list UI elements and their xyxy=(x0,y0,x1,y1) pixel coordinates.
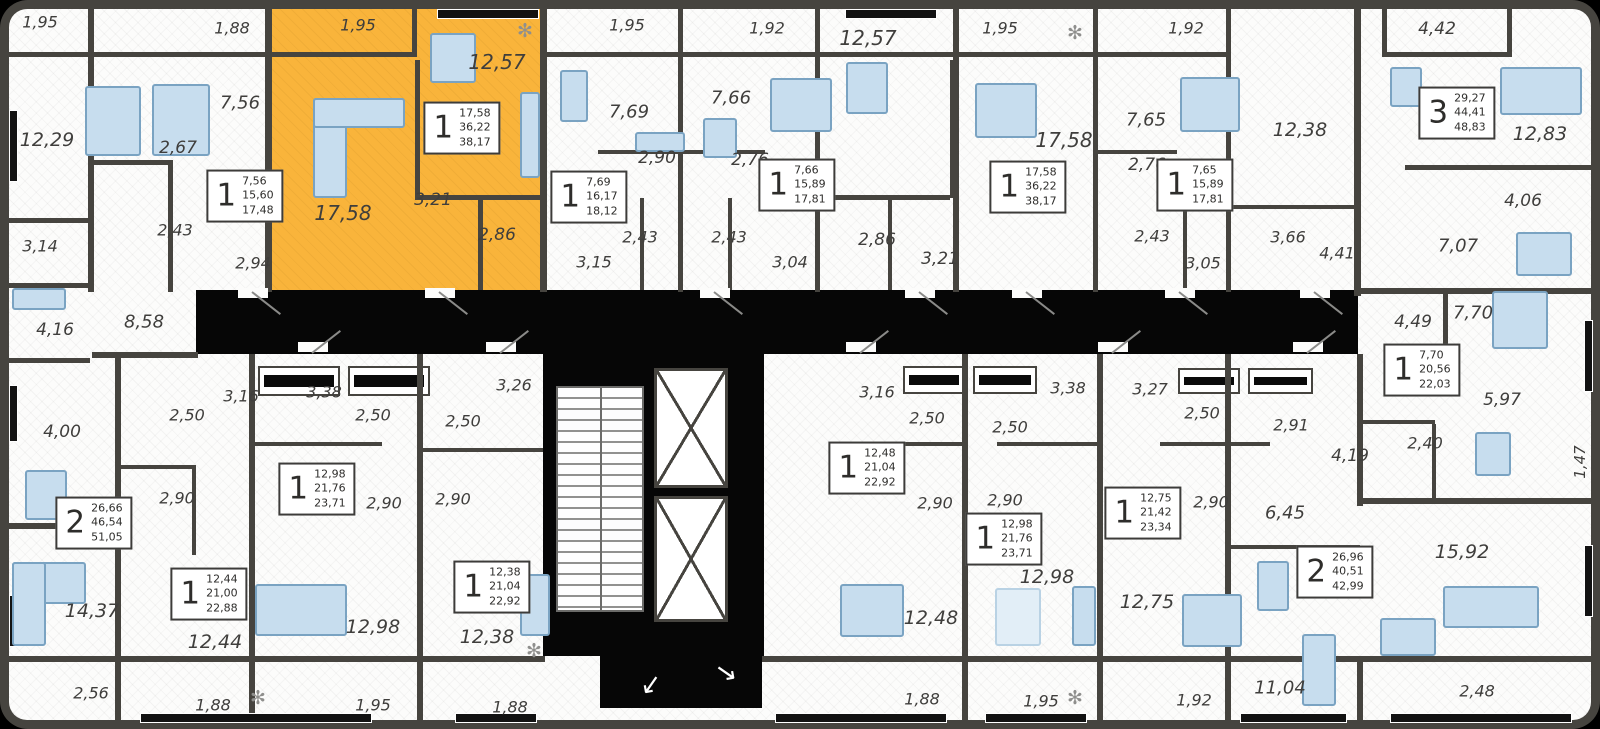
wall-segment xyxy=(1382,9,1387,57)
room-area-label: 2,90 xyxy=(366,494,402,513)
room-area-label: 2,90 xyxy=(159,489,195,508)
apartment-rooms-count: 1 xyxy=(463,571,483,602)
wall-segment xyxy=(1228,205,1356,209)
dining-table-icon xyxy=(1516,232,1572,276)
apartment-rooms-count: 1 xyxy=(288,473,308,504)
room-area-label: 12,38 xyxy=(1273,119,1327,141)
bed-icon xyxy=(1180,77,1240,132)
room-area-label: 3,38 xyxy=(1050,379,1086,398)
apartment-areas: 26,6646,5451,05 xyxy=(91,502,123,545)
room-area-label: 12,98 xyxy=(346,616,400,638)
wall-segment xyxy=(1183,198,1187,290)
apartment-areas: 7,6916,1718,12 xyxy=(586,176,618,219)
room-area-label: 3,21 xyxy=(921,249,959,269)
plant-icon: ✻ xyxy=(526,640,546,660)
window xyxy=(1390,713,1572,723)
kitchen-counter-icon xyxy=(520,92,540,178)
room-area-label: 14,37 xyxy=(65,600,119,622)
room-area-label: 12,57 xyxy=(839,26,896,50)
wall-segment xyxy=(1405,165,1592,170)
apartment-rooms-count: 1 xyxy=(768,169,788,200)
apartment-rooms-count: 1 xyxy=(1114,497,1134,528)
room-area-label: 11,04 xyxy=(1254,678,1306,699)
rug-icon xyxy=(995,588,1041,646)
wall-segment xyxy=(1354,9,1361,296)
room-area-label: 2,43 xyxy=(711,228,747,247)
room-area-label: 1,92 xyxy=(749,19,785,38)
exit-arrow-icon: ↙ xyxy=(638,667,673,702)
apartment-stat-card: 112,4821,0422,92 xyxy=(828,442,905,495)
room-area-label: 4,19 xyxy=(1331,446,1369,466)
bed-icon xyxy=(85,86,141,156)
wall-segment xyxy=(1225,354,1231,721)
dining-table-icon xyxy=(1475,432,1511,476)
room-area-label: 2,94 xyxy=(235,254,271,273)
apartment-areas: 7,6515,8917,81 xyxy=(1192,164,1224,207)
dining-table-icon xyxy=(1257,561,1289,611)
bed-icon xyxy=(1492,291,1548,349)
room-area-label: 3,05 xyxy=(1185,254,1221,273)
wall-segment xyxy=(1507,9,1512,57)
wall-segment xyxy=(412,9,417,57)
room-area-label: 3,04 xyxy=(772,253,808,272)
bed-icon xyxy=(975,83,1037,138)
room-area-label: 6,45 xyxy=(1265,503,1305,524)
apartment-stat-card: 112,7521,4223,34 xyxy=(1104,487,1181,540)
wall-segment xyxy=(92,160,172,165)
wall-segment xyxy=(997,442,1097,446)
desk-icon xyxy=(1390,67,1422,107)
kitchen-counter-icon xyxy=(1380,618,1436,656)
wall-segment xyxy=(8,218,90,223)
room-area-label: 3,21 xyxy=(414,190,452,210)
wall-segment xyxy=(1357,656,1363,721)
room-area-label: 12,83 xyxy=(1513,123,1567,145)
room-area-label: 7,66 xyxy=(711,88,751,109)
wall-segment xyxy=(1097,354,1103,721)
apartment-rooms-count: 2 xyxy=(65,507,85,538)
apartment-stat-card: 329,2744,4148,83 xyxy=(1418,87,1495,140)
apartment-areas: 12,9821,7623,71 xyxy=(1001,518,1033,561)
window xyxy=(1584,545,1593,617)
bed-icon xyxy=(255,584,347,636)
wall-segment xyxy=(252,442,382,446)
room-area-label: 1,95 xyxy=(355,696,391,715)
sofa-icon xyxy=(1072,586,1096,646)
apartment-areas: 12,4421,0022,88 xyxy=(206,573,238,616)
exit-arrow-icon: ↘ xyxy=(713,655,748,690)
sofa-icon xyxy=(12,562,46,646)
room-area-label: 3,16 xyxy=(859,383,895,402)
wardrobe xyxy=(903,366,965,394)
room-area-label: 2,56 xyxy=(73,684,109,703)
sofa-icon xyxy=(1500,67,1582,115)
apartment-stat-card: 226,9640,5142,99 xyxy=(1296,546,1373,599)
room-area-label: 3,26 xyxy=(496,376,532,395)
wall-segment xyxy=(92,352,198,358)
plant-icon: ✻ xyxy=(250,687,270,707)
window xyxy=(985,713,1087,723)
room-area-label: 2,50 xyxy=(355,406,391,425)
room-area-label: 2,86 xyxy=(858,230,896,250)
elevator-shaft-icon xyxy=(654,496,728,622)
room-area-label: 1,95 xyxy=(982,19,1018,38)
wall-segment xyxy=(192,465,196,555)
room-area-label: 1,95 xyxy=(22,13,58,32)
apartment-stat-card: 117,5836,2238,17 xyxy=(989,161,1066,214)
room-area-label: 1,88 xyxy=(195,696,231,715)
building-floor-plan: ↙↘✻✻✻✻✻1,951,881,9512,571,951,9212,571,9… xyxy=(0,0,1600,729)
plant-icon: ✻ xyxy=(517,20,537,40)
room-area-label: 2,40 xyxy=(1407,434,1443,453)
window xyxy=(9,110,18,182)
room-area-label: 1,92 xyxy=(1168,19,1204,38)
room-area-label: 2,50 xyxy=(169,406,205,425)
wall-segment xyxy=(478,200,483,290)
room-area-label: 2,50 xyxy=(445,412,481,431)
apartment-areas: 12,4821,0422,92 xyxy=(864,447,896,490)
apartment-areas: 12,7521,4223,34 xyxy=(1140,492,1172,535)
wall-segment xyxy=(762,656,1592,662)
apartment-rooms-count: 1 xyxy=(1393,354,1413,385)
apartment-rooms-count: 1 xyxy=(433,112,453,143)
room-area-label: 2,90 xyxy=(917,494,953,513)
apartment-areas: 7,5615,6017,48 xyxy=(242,175,274,218)
wall-segment xyxy=(1160,442,1270,446)
floor-plan-stage: Residential floor plan with highlighted … xyxy=(0,0,1600,729)
window xyxy=(140,713,372,723)
plant-icon: ✻ xyxy=(1067,22,1087,42)
wall-segment xyxy=(1357,498,1592,504)
apartment-areas: 7,6615,8917,81 xyxy=(794,164,826,207)
sofa-icon xyxy=(560,70,588,122)
room-area-label: 4,00 xyxy=(43,422,81,442)
apartment-stat-card: 17,6916,1718,12 xyxy=(550,171,627,224)
apartment-stat-card: 112,3821,0422,92 xyxy=(453,561,530,614)
apartment-rooms-count: 1 xyxy=(180,578,200,609)
room-area-label: 1,47 xyxy=(1571,445,1589,478)
wall-segment xyxy=(1357,354,1363,506)
apartment-rooms-count: 3 xyxy=(1428,97,1448,128)
dining-table-icon xyxy=(846,62,888,114)
apartment-areas: 17,5836,2238,17 xyxy=(1025,166,1057,209)
room-area-label: 2,48 xyxy=(1459,682,1495,701)
apartment-stat-card: 112,9821,7623,71 xyxy=(278,463,355,516)
room-area-label: 1,95 xyxy=(609,16,645,35)
room-area-label: 3,66 xyxy=(1270,228,1306,247)
staircase xyxy=(556,386,644,612)
apartment-areas: 29,2744,4148,83 xyxy=(1454,92,1486,135)
apartment-areas: 12,9821,7623,71 xyxy=(314,468,346,511)
window xyxy=(1240,713,1347,723)
bathtub-icon xyxy=(12,288,66,310)
room-area-label: 8,58 xyxy=(124,312,164,333)
room-area-label: 12,98 xyxy=(1020,566,1074,588)
wall-segment xyxy=(8,358,90,363)
wall-segment xyxy=(249,354,255,721)
apartment-stat-card: 112,4421,0022,88 xyxy=(170,568,247,621)
room-area-label: 2,43 xyxy=(157,221,193,240)
room-area-label: 12,29 xyxy=(20,129,74,151)
wall-segment xyxy=(9,52,415,57)
wall-segment xyxy=(1382,52,1510,57)
room-area-label: 12,48 xyxy=(904,607,958,629)
room-area-label: 2,43 xyxy=(1134,227,1170,246)
room-area-label: 2,50 xyxy=(992,418,1028,437)
corridor-core-area xyxy=(196,290,1358,354)
apartment-areas: 7,7020,5622,03 xyxy=(1419,349,1451,392)
apartment-rooms-count: 2 xyxy=(1306,556,1326,587)
apartment-areas: 12,3821,0422,92 xyxy=(489,566,521,609)
wall-segment xyxy=(9,656,545,662)
apartment-stat-card: 17,6515,8917,81 xyxy=(1156,159,1233,212)
room-area-label: 12,75 xyxy=(1120,591,1174,613)
room-area-label: 12,38 xyxy=(460,626,514,648)
room-area-label: 2,90 xyxy=(638,148,676,168)
wardrobe xyxy=(1248,368,1313,394)
room-area-label: 1,88 xyxy=(492,698,528,717)
room-area-label: 1,92 xyxy=(1176,691,1212,710)
plant-icon: ✻ xyxy=(1067,687,1087,707)
sofa-icon xyxy=(1302,634,1336,706)
apartment-areas: 17,5836,2238,17 xyxy=(459,107,491,150)
window xyxy=(845,9,937,19)
sofa-icon xyxy=(1443,586,1539,628)
apartment-rooms-count: 1 xyxy=(999,171,1019,202)
room-area-label: 2,67 xyxy=(159,138,197,158)
wall-segment xyxy=(1357,288,1592,294)
room-area-label: 3,14 xyxy=(22,237,58,256)
room-area-label: 12,57 xyxy=(468,50,525,74)
apartment-stat-card: 17,7020,5622,03 xyxy=(1383,344,1460,397)
room-area-label: 4,06 xyxy=(1504,191,1542,211)
room-area-label: 2,43 xyxy=(622,228,658,247)
room-area-label: 3,38 xyxy=(306,383,342,402)
room-area-label: 15,92 xyxy=(1435,541,1489,563)
room-area-label: 4,16 xyxy=(36,320,74,340)
room-area-label: 7,65 xyxy=(1126,110,1166,131)
apartment-stat-card: 17,5615,6017,48 xyxy=(206,170,283,223)
wall-segment xyxy=(1095,150,1177,154)
window xyxy=(437,9,539,19)
window xyxy=(9,385,18,442)
room-area-label: 2,50 xyxy=(1184,404,1220,423)
room-area-label: 5,97 xyxy=(1483,390,1521,410)
wall-segment xyxy=(950,60,955,198)
room-area-label: 17,58 xyxy=(314,201,371,225)
room-area-label: 1,95 xyxy=(340,16,376,35)
room-area-label: 2,90 xyxy=(1193,493,1229,512)
wall-segment xyxy=(423,448,543,452)
wall-segment xyxy=(415,60,420,198)
room-area-label: 4,42 xyxy=(1418,19,1456,39)
bed-icon xyxy=(840,584,904,637)
wall-segment xyxy=(1360,420,1435,424)
room-area-label: 12,44 xyxy=(188,631,242,653)
apartment-areas: 26,9640,5142,99 xyxy=(1332,551,1364,594)
wall-segment xyxy=(118,465,196,469)
room-area-label: 1,88 xyxy=(904,690,940,709)
apartment-rooms-count: 1 xyxy=(838,452,858,483)
wall-segment xyxy=(817,195,950,200)
apartment-rooms-count: 1 xyxy=(1166,169,1186,200)
room-area-label: 2,50 xyxy=(909,409,945,428)
apartment-stat-card: 112,9821,7623,71 xyxy=(965,513,1042,566)
room-area-label: 1,95 xyxy=(1023,692,1059,711)
apartment-rooms-count: 1 xyxy=(560,181,580,212)
apartment-stat-card: 226,6646,5451,05 xyxy=(55,497,132,550)
wardrobe xyxy=(973,366,1037,394)
room-area-label: 4,49 xyxy=(1394,312,1432,332)
room-area-label: 2,90 xyxy=(435,490,471,509)
elevator-shaft-icon xyxy=(654,368,728,488)
apartment-rooms-count: 1 xyxy=(975,523,995,554)
apartment-rooms-count: 1 xyxy=(216,180,236,211)
bed-icon xyxy=(1182,594,1242,647)
window xyxy=(1584,320,1593,392)
wall-segment xyxy=(417,354,423,721)
wall-segment xyxy=(1095,52,1228,57)
room-area-label: 3,16 xyxy=(223,387,259,406)
room-area-label: 3,27 xyxy=(1132,380,1168,399)
room-area-label: 4,41 xyxy=(1319,244,1355,263)
sofa-icon xyxy=(313,98,405,128)
window xyxy=(775,713,947,723)
apartment-stat-card: 17,6615,8917,81 xyxy=(758,159,835,212)
bed-icon xyxy=(770,78,832,132)
room-area-label: 2,86 xyxy=(478,225,516,245)
room-area-label: 3,15 xyxy=(576,253,612,272)
room-area-label: 7,56 xyxy=(220,93,260,114)
room-area-label: 2,90 xyxy=(987,491,1023,510)
room-area-label: 7,07 xyxy=(1438,236,1478,257)
room-area-label: 17,58 xyxy=(1035,128,1092,152)
apartment-stat-card[interactable]: 117,5836,2238,17 xyxy=(423,102,500,155)
room-area-label: 1,88 xyxy=(214,19,250,38)
room-area-label: 2,91 xyxy=(1273,416,1309,435)
room-area-label: 7,69 xyxy=(609,102,649,123)
wall-segment xyxy=(545,52,1095,57)
room-area-label: 7,70 xyxy=(1453,303,1493,324)
